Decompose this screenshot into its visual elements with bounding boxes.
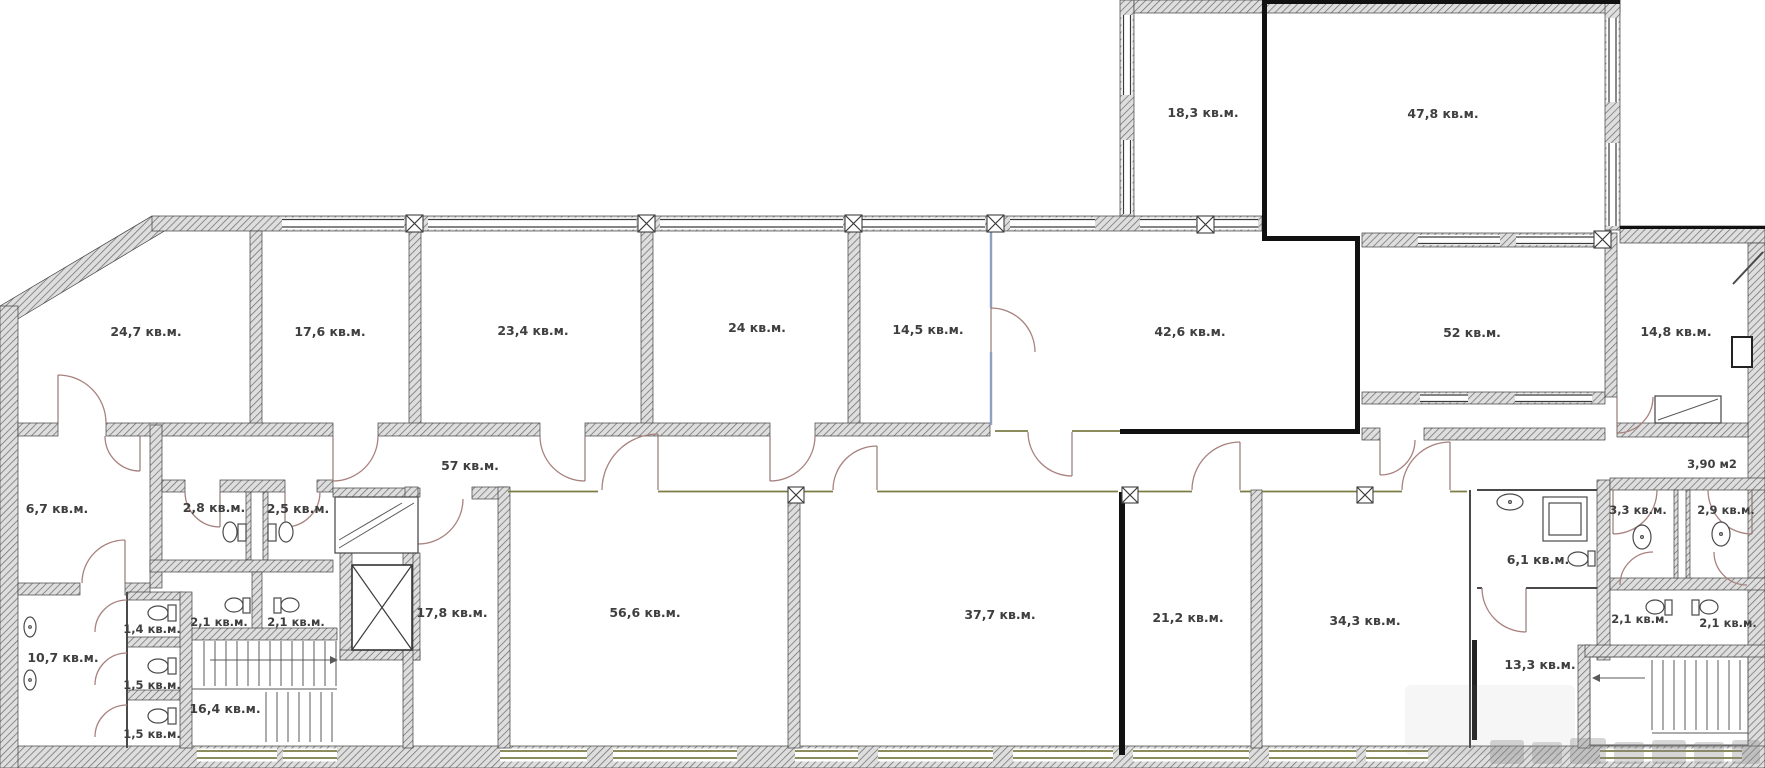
toilet-icon	[1568, 551, 1595, 566]
doors	[58, 308, 1752, 737]
label-room-47-8: 47,8 кв.м.	[1407, 106, 1478, 121]
label-room-37-7: 37,7 кв.м.	[964, 607, 1035, 622]
label-room-52: 52 кв.м.	[1443, 325, 1501, 340]
label-stair-16-4: 16,4 кв.м.	[189, 701, 260, 716]
label-wc-1-5-a: 1,5 кв.м.	[123, 678, 181, 692]
toilet-icon	[148, 658, 176, 674]
label-wc-2-9: 2,9 кв.м.	[1697, 503, 1755, 517]
label-room-10-7: 10,7 кв.м.	[27, 650, 98, 665]
label-room-23-4: 23,4 кв.м.	[497, 323, 568, 338]
column-icon	[1197, 216, 1214, 233]
label-area-3-90: 3,90 м2	[1687, 457, 1737, 471]
stairs-right	[1590, 657, 1748, 745]
column-icon	[638, 215, 655, 232]
sink-icon	[1712, 522, 1730, 546]
stairs-left	[192, 641, 338, 742]
label-room-17-8: 17,8 кв.м.	[416, 605, 487, 620]
column-icon	[1594, 231, 1611, 248]
column-icon	[1357, 487, 1373, 503]
toilet-icon	[225, 598, 250, 613]
windows	[197, 15, 1742, 762]
sink-icon	[1497, 494, 1523, 510]
label-room-18-3: 18,3 кв.м.	[1167, 105, 1238, 120]
column-icon	[1122, 487, 1138, 503]
label-wc-2-1-b: 2,1 кв.м.	[267, 615, 325, 629]
column-icon	[987, 215, 1004, 232]
label-wc-3-3: 3,3 кв.м.	[1609, 503, 1667, 517]
toilet-icon	[1692, 600, 1718, 615]
label-wc-1-5-b: 1,5 кв.м.	[123, 727, 181, 741]
column-icon	[788, 487, 804, 503]
label-room-6-7: 6,7 кв.м.	[26, 501, 89, 516]
label-room-17-6: 17,6 кв.м.	[294, 324, 365, 339]
label-room-24: 24 кв.м.	[728, 320, 786, 335]
label-room-24-7: 24,7 кв.м.	[110, 324, 181, 339]
label-room-21-2: 21,2 кв.м.	[1152, 610, 1223, 625]
toilet-icon	[223, 522, 246, 542]
label-room-14-5: 14,5 кв.м.	[892, 322, 963, 337]
column-icon	[406, 215, 423, 232]
label-room-13-3: 13,3 кв.м.	[1504, 657, 1575, 672]
radiator-icon	[1732, 337, 1752, 367]
label-corridor-57: 57 кв.м.	[441, 458, 499, 473]
columns	[406, 215, 1611, 503]
window-strip-52	[1418, 235, 1594, 403]
label-room-42-6: 42,6 кв.м.	[1154, 324, 1225, 339]
label-wc-1-4: 1,4 кв.м.	[123, 622, 181, 636]
window-strip-top-block	[1122, 15, 1619, 226]
label-room-6-1: 6,1 кв.м.	[1507, 552, 1570, 567]
column-icon	[845, 215, 862, 232]
sink-icon	[24, 617, 36, 637]
label-room-56-6: 56,6 кв.м.	[609, 605, 680, 620]
label-room-14-8: 14,8 кв.м.	[1640, 324, 1711, 339]
step-box-icon	[1655, 396, 1721, 423]
sink-icon	[24, 670, 36, 690]
label-wc-2-1-a: 2,1 кв.м.	[190, 615, 248, 629]
label-room-34-3: 34,3 кв.м.	[1329, 613, 1400, 628]
toilet-icon	[268, 522, 293, 542]
toilet-icon	[148, 708, 176, 724]
toilet-icon	[274, 598, 299, 613]
floor-plan-page: 18,3 кв.м. 47,8 кв.м. 24,7 кв.м. 17,6 кв…	[0, 0, 1765, 768]
toilet-icon	[148, 605, 176, 621]
label-wc-2-5: 2,5 кв.м.	[267, 501, 330, 516]
sink-icon	[1633, 525, 1651, 549]
floor-plan-drawing: 18,3 кв.м. 47,8 кв.м. 24,7 кв.м. 17,6 кв…	[0, 0, 1765, 768]
glazed-partitions	[508, 431, 1467, 492]
elevator-icon	[352, 565, 412, 650]
label-wc-2-1-c: 2,1 кв.м.	[1611, 612, 1669, 626]
ramp-icon	[335, 497, 418, 553]
label-wc-2-8: 2,8 кв.м.	[183, 500, 246, 515]
shower-icon	[1543, 497, 1587, 541]
label-wc-2-1-d: 2,1 кв.м.	[1699, 616, 1757, 630]
outer-walls	[0, 0, 1765, 768]
